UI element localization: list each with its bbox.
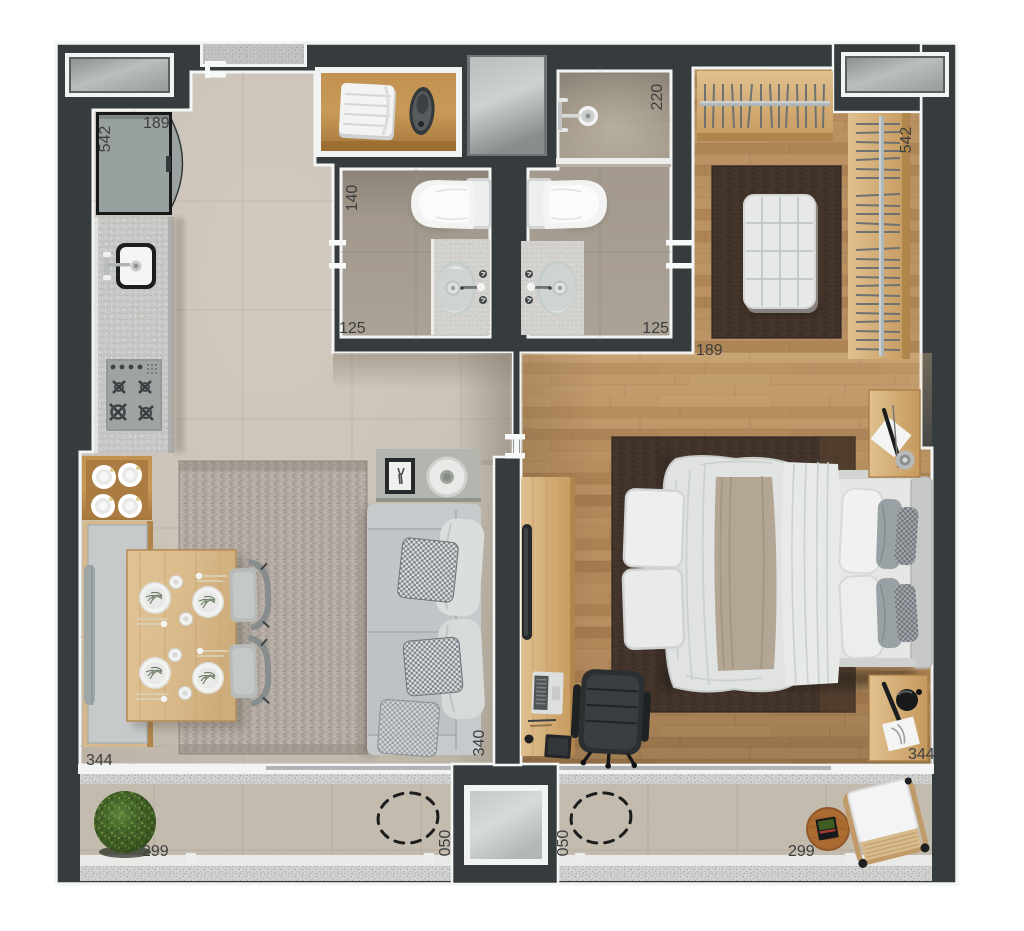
svg-text:189: 189 — [696, 342, 723, 359]
svg-text:542: 542 — [97, 126, 114, 153]
svg-text:189: 189 — [143, 115, 170, 132]
svg-text:299: 299 — [142, 843, 169, 860]
svg-text:299: 299 — [788, 843, 815, 860]
svg-text:344: 344 — [86, 752, 113, 769]
svg-text:050: 050 — [437, 830, 454, 857]
svg-text:542: 542 — [898, 127, 915, 154]
svg-text:344: 344 — [908, 746, 935, 763]
svg-text:125: 125 — [339, 320, 366, 337]
svg-text:050: 050 — [555, 830, 572, 857]
svg-text:125: 125 — [642, 320, 669, 337]
svg-text:340: 340 — [471, 730, 488, 757]
svg-text:140: 140 — [344, 185, 361, 212]
svg-text:220: 220 — [649, 84, 666, 111]
